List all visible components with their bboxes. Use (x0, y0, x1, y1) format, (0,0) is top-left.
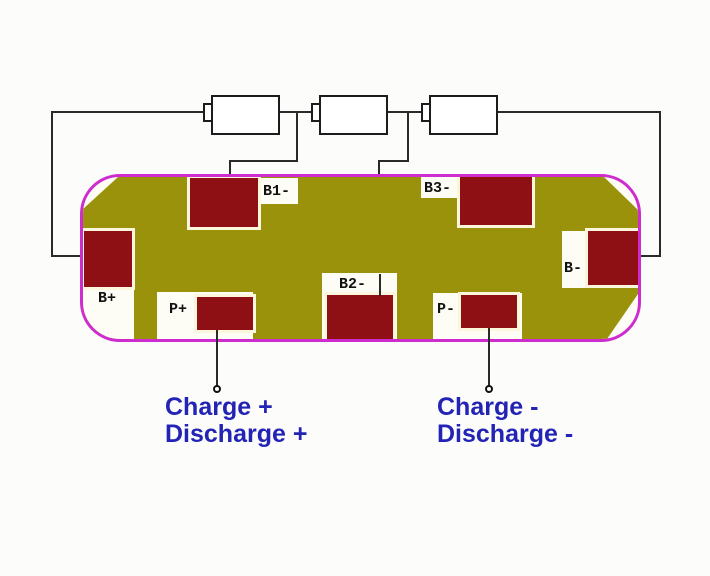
battery-cell-1 (211, 95, 280, 135)
wire-pplus-lead (216, 330, 218, 387)
pcb-board: B+ B1- B3- B2- P+ P- B- (80, 174, 641, 342)
positive-terminal-annotation: Charge + Discharge + (165, 394, 307, 448)
charge-plus-label: Charge + (165, 394, 307, 421)
pad-label-b-minus: B- (564, 261, 582, 276)
pad-label-b-plus: B+ (98, 291, 116, 306)
battery-cell-3 (429, 95, 498, 135)
wire-b1-drop-upper (296, 111, 298, 162)
wire-bplus-top (51, 111, 207, 113)
negative-terminal-annotation: Charge - Discharge - (437, 394, 573, 448)
pad-label-p-plus: P+ (169, 302, 187, 317)
pad-b1-minus (190, 178, 258, 227)
pad-b-minus (588, 231, 638, 285)
wire-bplus-left (51, 111, 53, 257)
pad-label-b2-minus: B2- (339, 277, 366, 292)
wire-bminus-to-pad (639, 255, 661, 257)
battery-cell-2 (319, 95, 388, 135)
wire-bminus-top (496, 111, 661, 113)
pad-label-p-minus: P- (437, 302, 455, 317)
discharge-minus-label: Discharge - (437, 421, 573, 448)
pad-label-b3-minus: B3- (424, 181, 451, 196)
wire-b2-step (378, 160, 409, 162)
wire-series-link-2 (388, 111, 424, 113)
wiring-diagram-canvas: B+ B1- B3- B2- P+ P- B- Charge + Dischar… (0, 0, 710, 576)
wire-b2-drop-upper (407, 111, 409, 162)
charge-minus-label: Charge - (437, 394, 573, 421)
pad-b-plus (84, 231, 132, 287)
pad-label-b1-minus: B1- (263, 184, 290, 199)
wire-pminus-lead (488, 328, 490, 387)
wire-b2-pad-stub (379, 274, 381, 296)
pad-b2-minus (327, 295, 393, 339)
pad-b3-minus (460, 177, 532, 225)
pad-p-minus (461, 295, 517, 328)
wire-bminus-right (659, 111, 661, 257)
pplus-terminal-circle (213, 385, 221, 393)
wire-b2-drop-lower (378, 160, 380, 175)
pad-p-plus (197, 297, 253, 330)
discharge-plus-label: Discharge + (165, 421, 307, 448)
wire-b1-step (229, 160, 298, 162)
pminus-terminal-circle (485, 385, 493, 393)
